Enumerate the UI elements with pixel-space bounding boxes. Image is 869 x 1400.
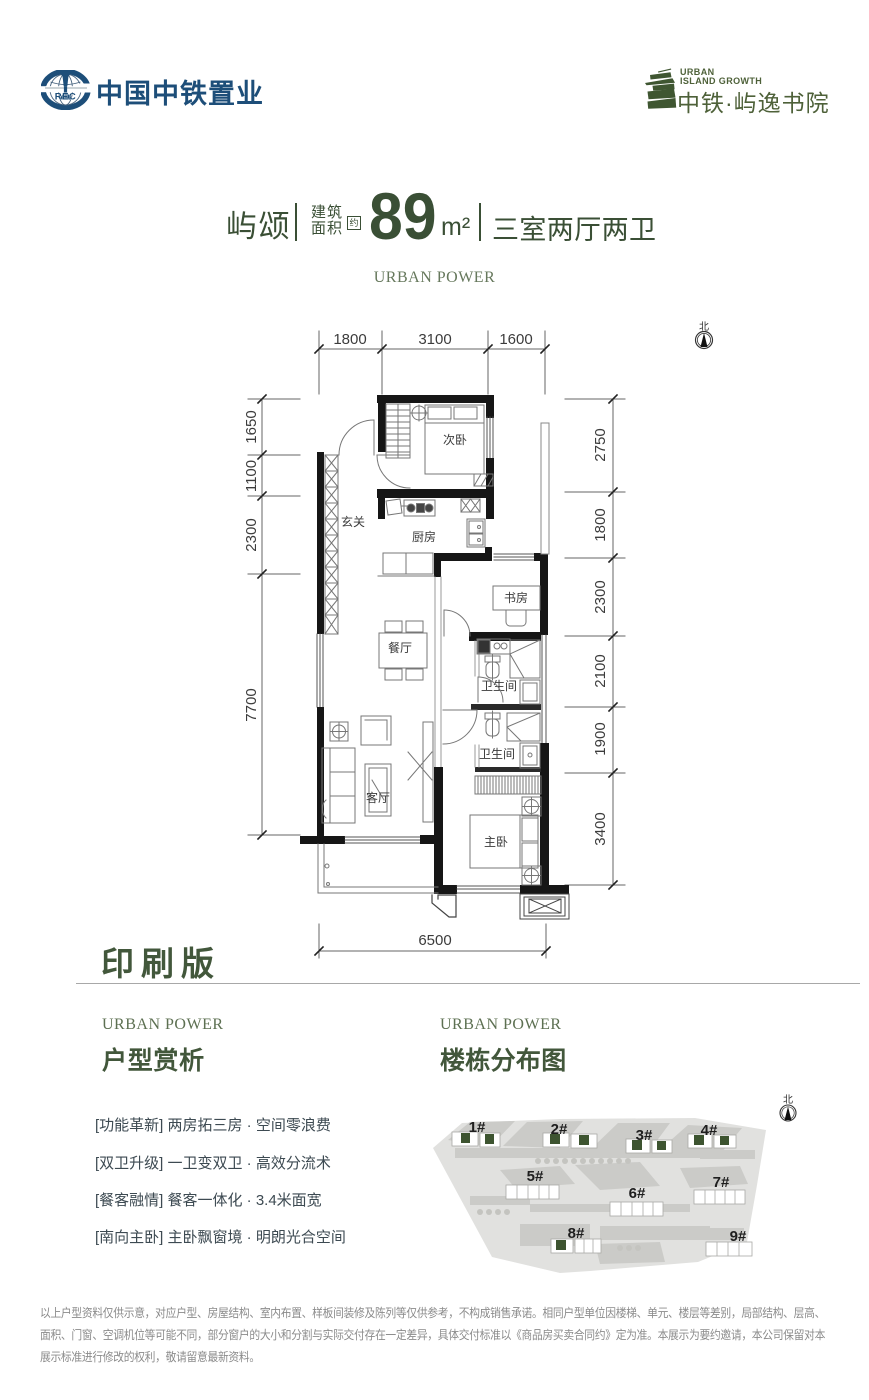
svg-text:1800: 1800 bbox=[592, 508, 609, 541]
svg-text:1600: 1600 bbox=[499, 331, 532, 348]
svg-text:1#: 1# bbox=[469, 1119, 486, 1136]
svg-text:1800: 1800 bbox=[333, 331, 366, 348]
svg-text:8#: 8# bbox=[568, 1225, 585, 1242]
svg-text:客厅: 客厅 bbox=[366, 790, 390, 805]
svg-text:7700: 7700 bbox=[243, 688, 260, 721]
svg-text:卫生间: 卫生间 bbox=[481, 679, 517, 693]
svg-text:书房: 书房 bbox=[504, 590, 528, 605]
svg-text:厨房: 厨房 bbox=[412, 529, 436, 544]
svg-text:1100: 1100 bbox=[243, 460, 260, 492]
svg-text:6#: 6# bbox=[629, 1185, 646, 1202]
svg-text:1900: 1900 bbox=[592, 722, 609, 755]
svg-text:3#: 3# bbox=[636, 1127, 653, 1144]
svg-text:餐厅: 餐厅 bbox=[388, 640, 412, 655]
svg-text:北: 北 bbox=[783, 1094, 793, 1106]
svg-text:6500: 6500 bbox=[418, 932, 451, 949]
svg-text:3400: 3400 bbox=[592, 812, 609, 845]
svg-text:主卧: 主卧 bbox=[484, 835, 508, 849]
svg-text:2100: 2100 bbox=[592, 654, 609, 687]
svg-text:北: 北 bbox=[699, 321, 709, 333]
svg-text:2300: 2300 bbox=[592, 580, 609, 613]
svg-text:7#: 7# bbox=[713, 1174, 730, 1191]
svg-text:2300: 2300 bbox=[243, 518, 260, 551]
svg-text:次卧: 次卧 bbox=[443, 433, 467, 447]
svg-text:玄关: 玄关 bbox=[341, 514, 365, 529]
svg-text:9#: 9# bbox=[730, 1228, 747, 1245]
svg-text:2750: 2750 bbox=[592, 428, 609, 461]
svg-text:REC: REC bbox=[55, 92, 77, 103]
svg-text:5#: 5# bbox=[527, 1168, 544, 1185]
svg-text:3100: 3100 bbox=[418, 331, 451, 348]
svg-text:卫生间: 卫生间 bbox=[479, 747, 515, 761]
svg-text:1650: 1650 bbox=[243, 410, 260, 443]
svg-text:2#: 2# bbox=[551, 1121, 568, 1138]
svg-text:4#: 4# bbox=[701, 1122, 718, 1139]
